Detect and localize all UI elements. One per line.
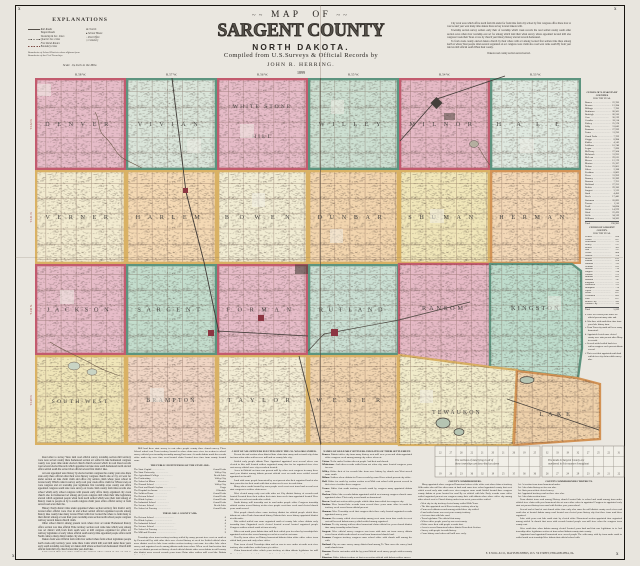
svg-text:SHUMAN: SHUMAN [408, 214, 480, 221]
svg-text:TEWAUKON: TEWAUKON [432, 410, 482, 416]
svg-text:T.131 N.: T.131 N. [29, 211, 33, 222]
svg-text:DENVER: DENVER [45, 121, 116, 128]
svg-text:HARLEM: HARLEM [136, 214, 208, 221]
svg-text:SARGENT: SARGENT [137, 307, 205, 314]
svg-text:T.130 N.: T.130 N. [29, 304, 33, 315]
svg-text:these townships are described: these townships are described as above [455, 463, 500, 466]
svg-text:MILNOR: MILNOR [409, 121, 479, 128]
svg-text:VIVIAN: VIVIAN [138, 121, 206, 128]
svg-text:HALL: HALL [497, 121, 575, 128]
svg-text:R.55 W.: R.55 W. [348, 73, 359, 77]
svg-text:WEBER: WEBER [316, 397, 390, 404]
svg-text:WHITE STONE: WHITE STONE [233, 104, 292, 110]
svg-text:RUTLAND: RUTLAND [319, 307, 388, 314]
svg-text:DUNBAR: DUNBAR [318, 214, 390, 221]
svg-text:R.53 W.: R.53 W. [530, 73, 541, 77]
svg-text:JACKSON: JACKSON [47, 307, 115, 314]
svg-text:R.58 W.: R.58 W. [75, 73, 86, 77]
svg-text:R.54 W.: R.54 W. [439, 73, 450, 77]
svg-text:T.129 N.: T.129 N. [29, 394, 33, 405]
svg-text:FORMAN: FORMAN [226, 307, 298, 314]
svg-text:BOWEN: BOWEN [225, 214, 300, 221]
svg-text:R.57 W.: R.57 W. [166, 73, 177, 77]
svg-text:VERNER: VERNER [45, 214, 115, 221]
svg-text:HERMAN: HERMAN [499, 214, 571, 221]
svg-text:R.56 W.: R.56 W. [257, 73, 268, 77]
svg-text:numbered in this manner throug: numbered in this manner throughout [548, 463, 589, 466]
svg-text:TAYLOR: TAYLOR [228, 397, 298, 404]
svg-text:WILLEY: WILLEY [319, 121, 388, 128]
svg-text:T.132 N.: T.132 N. [29, 118, 33, 129]
svg-text:HILL: HILL [252, 134, 273, 140]
svg-text:SOUTH WEST: SOUTH WEST [52, 399, 110, 405]
